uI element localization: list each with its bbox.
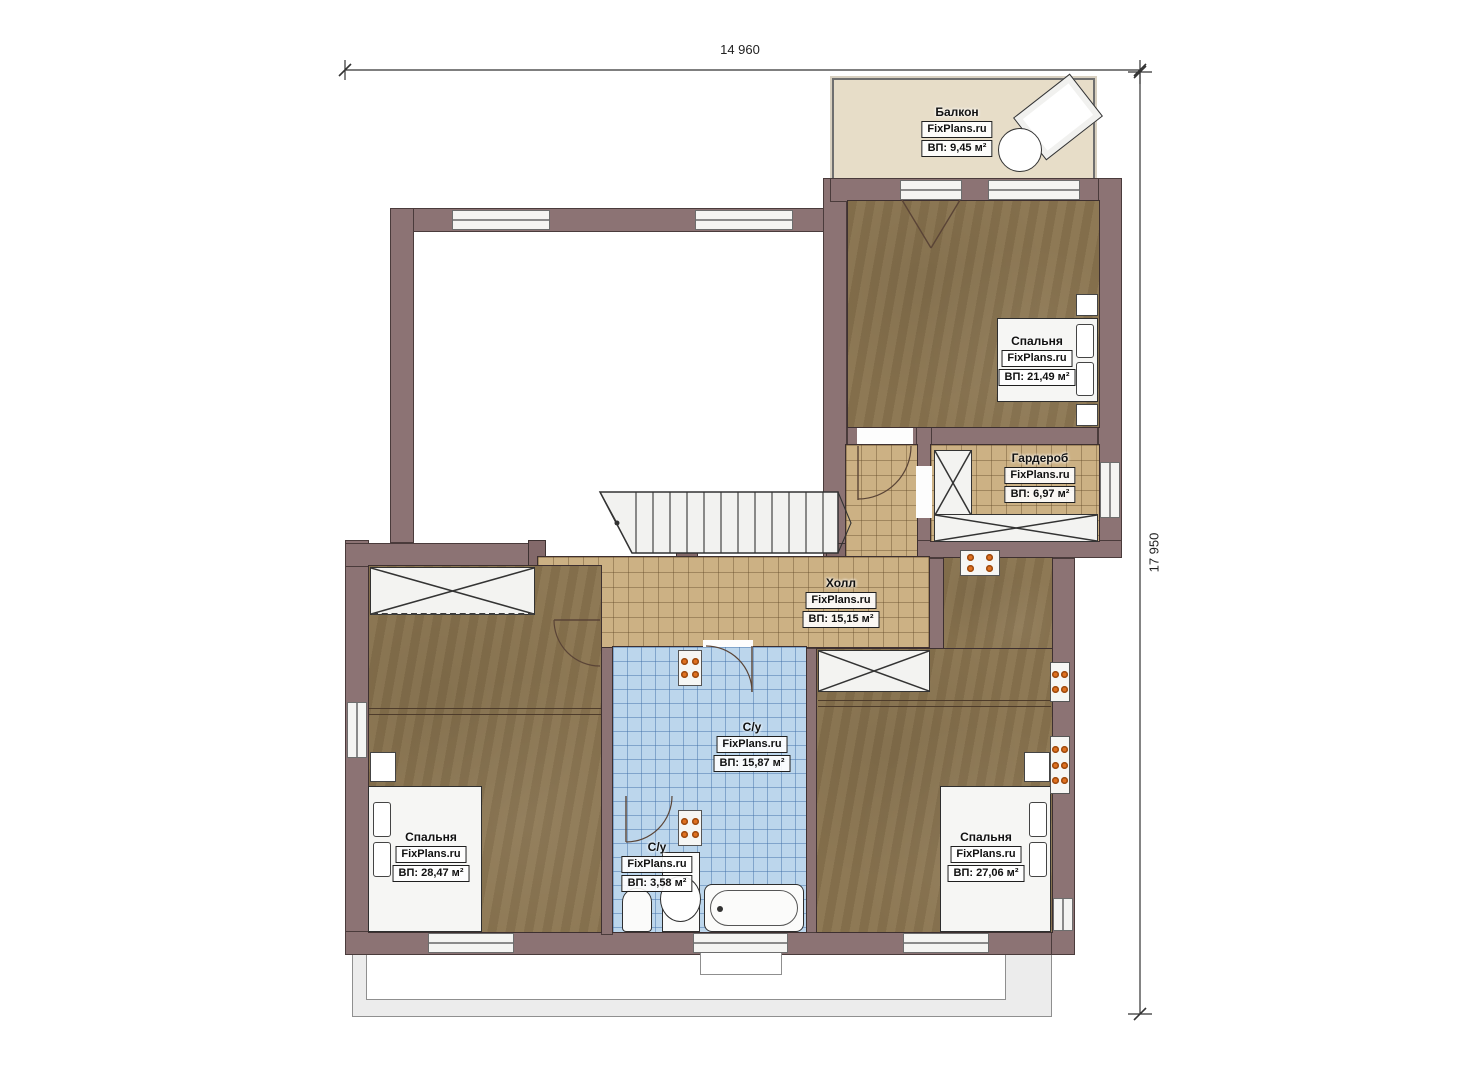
bedroom-bl-door-swing bbox=[550, 616, 604, 670]
window-bottom-1 bbox=[428, 933, 514, 953]
wardrobe-name: Гардероб bbox=[1012, 451, 1069, 465]
bathtub bbox=[704, 884, 804, 932]
bedroom-bl-brand: FixPlans.ru bbox=[395, 846, 466, 863]
hall-spot-group bbox=[960, 550, 1000, 576]
radiator-br-1 bbox=[1050, 662, 1070, 702]
closet-wardrobe-left bbox=[934, 450, 972, 516]
bathroom-small-label: С/у FixPlans.ru ВП: 3,58 м² bbox=[621, 840, 692, 892]
balcony-label: Балкон FixPlans.ru ВП: 9,45 м² bbox=[921, 105, 992, 157]
balcony-table bbox=[998, 128, 1042, 172]
wall-void-left bbox=[390, 208, 414, 543]
window-bedroom-tr bbox=[988, 180, 1080, 200]
toilet bbox=[622, 888, 652, 932]
bedroom-bl-name: Спальня bbox=[405, 830, 457, 844]
bathroom-small-brand: FixPlans.ru bbox=[621, 856, 692, 873]
floor-plan-canvas: Балкон FixPlans.ru ВП: 9,45 м² Спальня F… bbox=[0, 0, 1473, 1080]
closet-bedroom-bl bbox=[370, 567, 535, 615]
bed-tr-nightstand-bottom bbox=[1076, 404, 1098, 426]
bathroom-small-area: ВП: 3,58 м² bbox=[622, 875, 693, 892]
dimension-width-text: 14 960 bbox=[660, 42, 820, 57]
hall-label: Холл FixPlans.ru ВП: 15,15 м² bbox=[803, 576, 880, 628]
bedroom-tr-name: Спальня bbox=[1011, 334, 1063, 348]
bedroom-br-brand: FixPlans.ru bbox=[950, 846, 1021, 863]
closet-bl-sliding-door bbox=[372, 613, 534, 615]
bathroom-main-door-swing bbox=[700, 644, 758, 698]
bathroom-main-brand: FixPlans.ru bbox=[716, 736, 787, 753]
bedroom-br-label: Спальня FixPlans.ru ВП: 27,06 м² bbox=[948, 830, 1025, 882]
bedroom-tr-door-swing bbox=[855, 444, 917, 504]
bedroom-br-name: Спальня bbox=[960, 830, 1012, 844]
window-bedroom-br-sill bbox=[1053, 898, 1073, 931]
bed-tr-pillow-2 bbox=[1076, 362, 1094, 396]
balcony-door bbox=[900, 180, 962, 200]
hall-area: ВП: 15,15 м² bbox=[803, 611, 880, 628]
window-void-top-1 bbox=[452, 210, 550, 230]
wardrobe-brand: FixPlans.ru bbox=[1004, 467, 1075, 484]
bedroom-tr-area: ВП: 21,49 м² bbox=[999, 369, 1076, 386]
bedroom-tr-brand: FixPlans.ru bbox=[1001, 350, 1072, 367]
window-void-top-2 bbox=[695, 210, 793, 230]
bed-tr-pillow-1 bbox=[1076, 324, 1094, 358]
closet-wardrobe-bottom bbox=[934, 514, 1098, 542]
window-wardrobe bbox=[1100, 462, 1120, 518]
bedroom-br-area: ВП: 27,06 м² bbox=[948, 865, 1025, 882]
hall-brand: FixPlans.ru bbox=[805, 592, 876, 609]
window-bedroom-bl bbox=[347, 702, 367, 758]
bed-br-pillow-2 bbox=[1029, 842, 1047, 877]
bed-bl-pillow-2 bbox=[373, 842, 391, 877]
bed-tr-nightstand-top bbox=[1076, 294, 1098, 316]
hall-name: Холл bbox=[826, 576, 856, 590]
bed-br-nightstand bbox=[1024, 752, 1050, 782]
bathroom-small-door-swing bbox=[620, 792, 676, 846]
bed-bl-nightstand bbox=[370, 752, 396, 782]
balcony-brand: FixPlans.ru bbox=[921, 121, 992, 138]
bedroom-tr-door-opening bbox=[857, 428, 913, 444]
balcony-name: Балкон bbox=[935, 105, 978, 119]
bathroom-small-name: С/у bbox=[648, 840, 667, 854]
wall-wardrobe-bottom bbox=[916, 540, 1122, 558]
door-step bbox=[700, 953, 782, 975]
wall-hall-bedroom-br bbox=[928, 558, 944, 652]
staircase bbox=[590, 483, 860, 563]
bathtub-drain bbox=[717, 906, 723, 912]
closet-bedroom-br bbox=[818, 650, 930, 692]
wardrobe-door-opening bbox=[916, 466, 932, 518]
bathroom-main-name: С/у bbox=[743, 720, 762, 734]
bedroom-tr-label: Спальня FixPlans.ru ВП: 21,49 м² bbox=[999, 334, 1076, 386]
wardrobe-area: ВП: 6,97 м² bbox=[1005, 486, 1076, 503]
bedroom-bl-area: ВП: 28,47 м² bbox=[393, 865, 470, 882]
wardrobe-label: Гардероб FixPlans.ru ВП: 6,97 м² bbox=[1004, 451, 1075, 503]
balcony-area: ВП: 9,45 м² bbox=[922, 140, 993, 157]
window-bottom-2 bbox=[903, 933, 989, 953]
door-bottom-center bbox=[693, 933, 788, 953]
bed-br-pillow-1 bbox=[1029, 802, 1047, 837]
bedroom-bl-label: Спальня FixPlans.ru ВП: 28,47 м² bbox=[393, 830, 470, 882]
dimension-height-text: 17 950 bbox=[1147, 523, 1162, 583]
bed-bl-pillow-1 bbox=[373, 802, 391, 837]
radiator-br-2 bbox=[1050, 736, 1070, 794]
break-line-br bbox=[818, 700, 1051, 707]
bathroom-main-label: С/у FixPlans.ru ВП: 15,87 м² bbox=[714, 720, 791, 772]
terrace-inner bbox=[366, 953, 1006, 1000]
towel-warmer-top bbox=[678, 650, 702, 686]
balcony-door-swing bbox=[895, 198, 971, 254]
bathroom-main-area: ВП: 15,87 м² bbox=[714, 755, 791, 772]
wall-lower-topleft bbox=[345, 543, 537, 567]
break-line-bl bbox=[369, 708, 601, 715]
